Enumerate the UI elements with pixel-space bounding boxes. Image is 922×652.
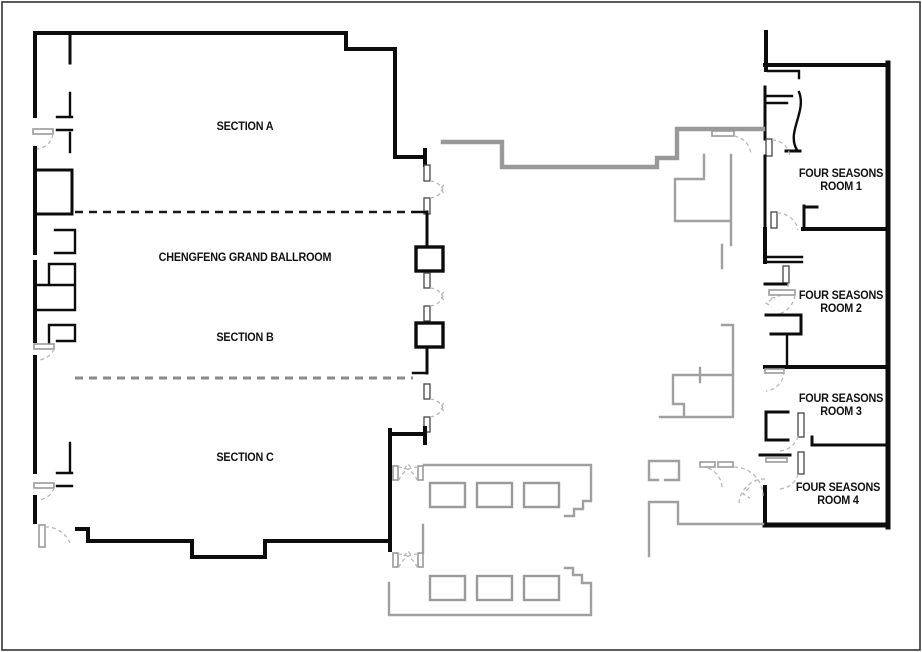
pillar — [416, 323, 443, 347]
four-seasons-walls — [739, 32, 888, 527]
section-c-label: SECTION C — [155, 451, 335, 464]
door-leaf — [424, 384, 430, 399]
room-label-line1: FOUR SEASONS — [799, 288, 883, 302]
door-leaf — [783, 266, 789, 283]
section-a-label: SECTION A — [155, 120, 335, 133]
table — [477, 576, 512, 600]
room-label-line1: FOUR SEASONS — [799, 166, 883, 180]
four-seasons-room-4-label: FOUR SEASONS ROOM 4 — [771, 481, 906, 507]
room-label-line2: ROOM 4 — [771, 494, 906, 507]
floor-plan-canvas — [0, 0, 922, 652]
door-leaf — [771, 212, 777, 228]
pillar — [416, 247, 443, 271]
ballroom-walls — [35, 33, 422, 557]
table — [430, 576, 465, 600]
room-label-line1: FOUR SEASONS — [799, 391, 883, 405]
door-leaf — [424, 306, 430, 321]
room-label-line2: ROOM 1 — [774, 180, 909, 193]
section-b-label: SECTION B — [155, 331, 335, 344]
floor-plan-page: SECTION A CHENGFENG GRAND BALLROOM SECTI… — [0, 0, 922, 652]
table — [524, 576, 559, 600]
table — [477, 483, 512, 507]
room-label-line1: FOUR SEASONS — [796, 480, 880, 494]
banquet-tables-upper — [393, 464, 591, 516]
ballroom-east-doors — [413, 150, 444, 443]
four-seasons-room-3-label: FOUR SEASONS ROOM 3 — [774, 392, 909, 418]
page-border — [2, 2, 920, 650]
room-label-line2: ROOM 3 — [774, 405, 909, 418]
ballroom-west-doors — [33, 129, 70, 547]
table — [524, 483, 559, 507]
four-seasons-room-1-label: FOUR SEASONS ROOM 1 — [774, 167, 909, 193]
ballroom-name-label: CHENGFENG GRAND BALLROOM — [137, 251, 353, 264]
curved-wall — [794, 92, 801, 150]
door-leaf — [424, 165, 430, 181]
door-leaf — [766, 139, 772, 156]
door-leaf — [424, 273, 430, 288]
four-seasons-room-2-label: FOUR SEASONS ROOM 2 — [774, 289, 909, 315]
room-label-line2: ROOM 2 — [774, 302, 909, 315]
door-leaf — [798, 452, 804, 474]
table — [430, 483, 465, 507]
banquet-tables-lower — [389, 525, 591, 615]
